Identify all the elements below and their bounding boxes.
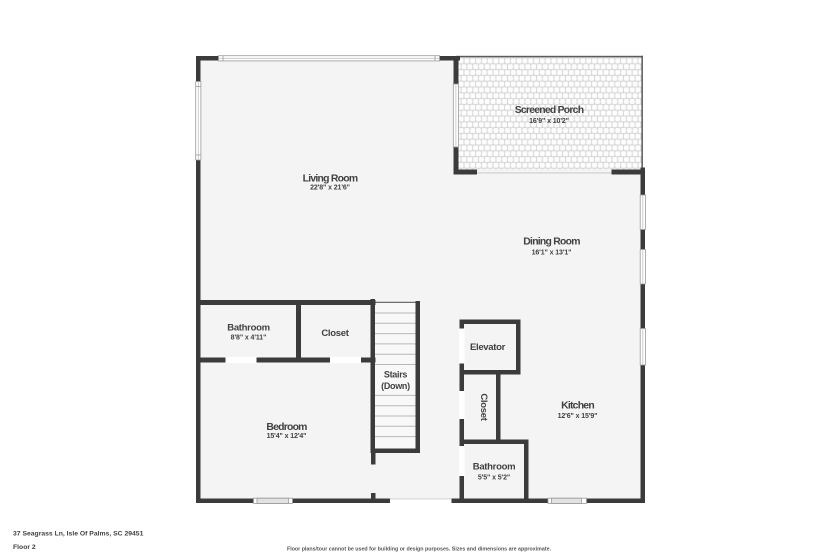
svg-text:Dining Room: Dining Room bbox=[523, 237, 580, 248]
svg-text:Closet: Closet bbox=[478, 393, 489, 421]
svg-text:8'8" x 4'11": 8'8" x 4'11" bbox=[231, 335, 267, 342]
svg-text:12'6" x 15'9": 12'6" x 15'9" bbox=[558, 413, 598, 420]
svg-text:Screened Porch: Screened Porch bbox=[515, 105, 584, 116]
svg-text:37 Seagrass Ln, Isle Of Palms,: 37 Seagrass Ln, Isle Of Palms, SC 29451 bbox=[13, 531, 144, 538]
svg-text:Stairs: Stairs bbox=[384, 370, 408, 380]
svg-text:15'4" x 12'4": 15'4" x 12'4" bbox=[267, 433, 307, 440]
svg-text:22'8" x 21'6": 22'8" x 21'6" bbox=[310, 185, 350, 192]
svg-text:Floor plans/tour cannot be use: Floor plans/tour cannot be used for buil… bbox=[287, 547, 552, 553]
svg-text:Bedroom: Bedroom bbox=[266, 422, 307, 433]
svg-text:Elevator: Elevator bbox=[470, 342, 506, 353]
svg-text:(Down): (Down) bbox=[381, 381, 410, 391]
svg-text:Floor 2: Floor 2 bbox=[13, 544, 36, 551]
svg-text:Bathroom: Bathroom bbox=[227, 323, 269, 334]
svg-text:5'5" x 5'2": 5'5" x 5'2" bbox=[478, 475, 510, 482]
svg-text:16'9" x 10'2": 16'9" x 10'2" bbox=[529, 118, 569, 125]
svg-text:16'1" x 13'1": 16'1" x 13'1" bbox=[532, 250, 572, 257]
svg-text:Bathroom: Bathroom bbox=[473, 461, 515, 472]
svg-text:Kitchen: Kitchen bbox=[561, 401, 594, 412]
svg-text:Closet: Closet bbox=[321, 328, 349, 339]
svg-text:Living Room: Living Room bbox=[303, 174, 358, 185]
